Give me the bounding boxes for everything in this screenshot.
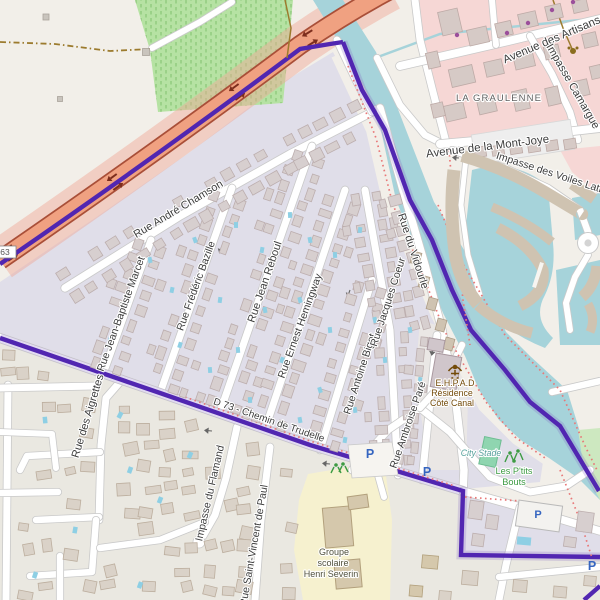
svg-text:Les P'tits: Les P'tits bbox=[496, 466, 533, 476]
svg-text:Résidence: Résidence bbox=[431, 388, 473, 398]
svg-text:Côté Canal: Côté Canal bbox=[430, 398, 474, 408]
svg-text:E.H.P.A.D: E.H.P.A.D bbox=[436, 378, 475, 388]
svg-text:P: P bbox=[588, 559, 596, 573]
svg-text:scolaire: scolaire bbox=[317, 558, 348, 568]
svg-text:P: P bbox=[534, 509, 541, 521]
svg-text:LA GRAULENNE: LA GRAULENNE bbox=[456, 93, 542, 104]
svg-text:Bouts: Bouts bbox=[502, 477, 526, 487]
svg-text:P: P bbox=[366, 447, 374, 461]
svg-text:63: 63 bbox=[0, 247, 10, 257]
svg-text:City Stade: City Stade bbox=[461, 448, 502, 458]
svg-text:P: P bbox=[423, 465, 431, 479]
svg-text:Henri Severin: Henri Severin bbox=[304, 569, 359, 579]
svg-text:Groupe: Groupe bbox=[319, 547, 349, 557]
